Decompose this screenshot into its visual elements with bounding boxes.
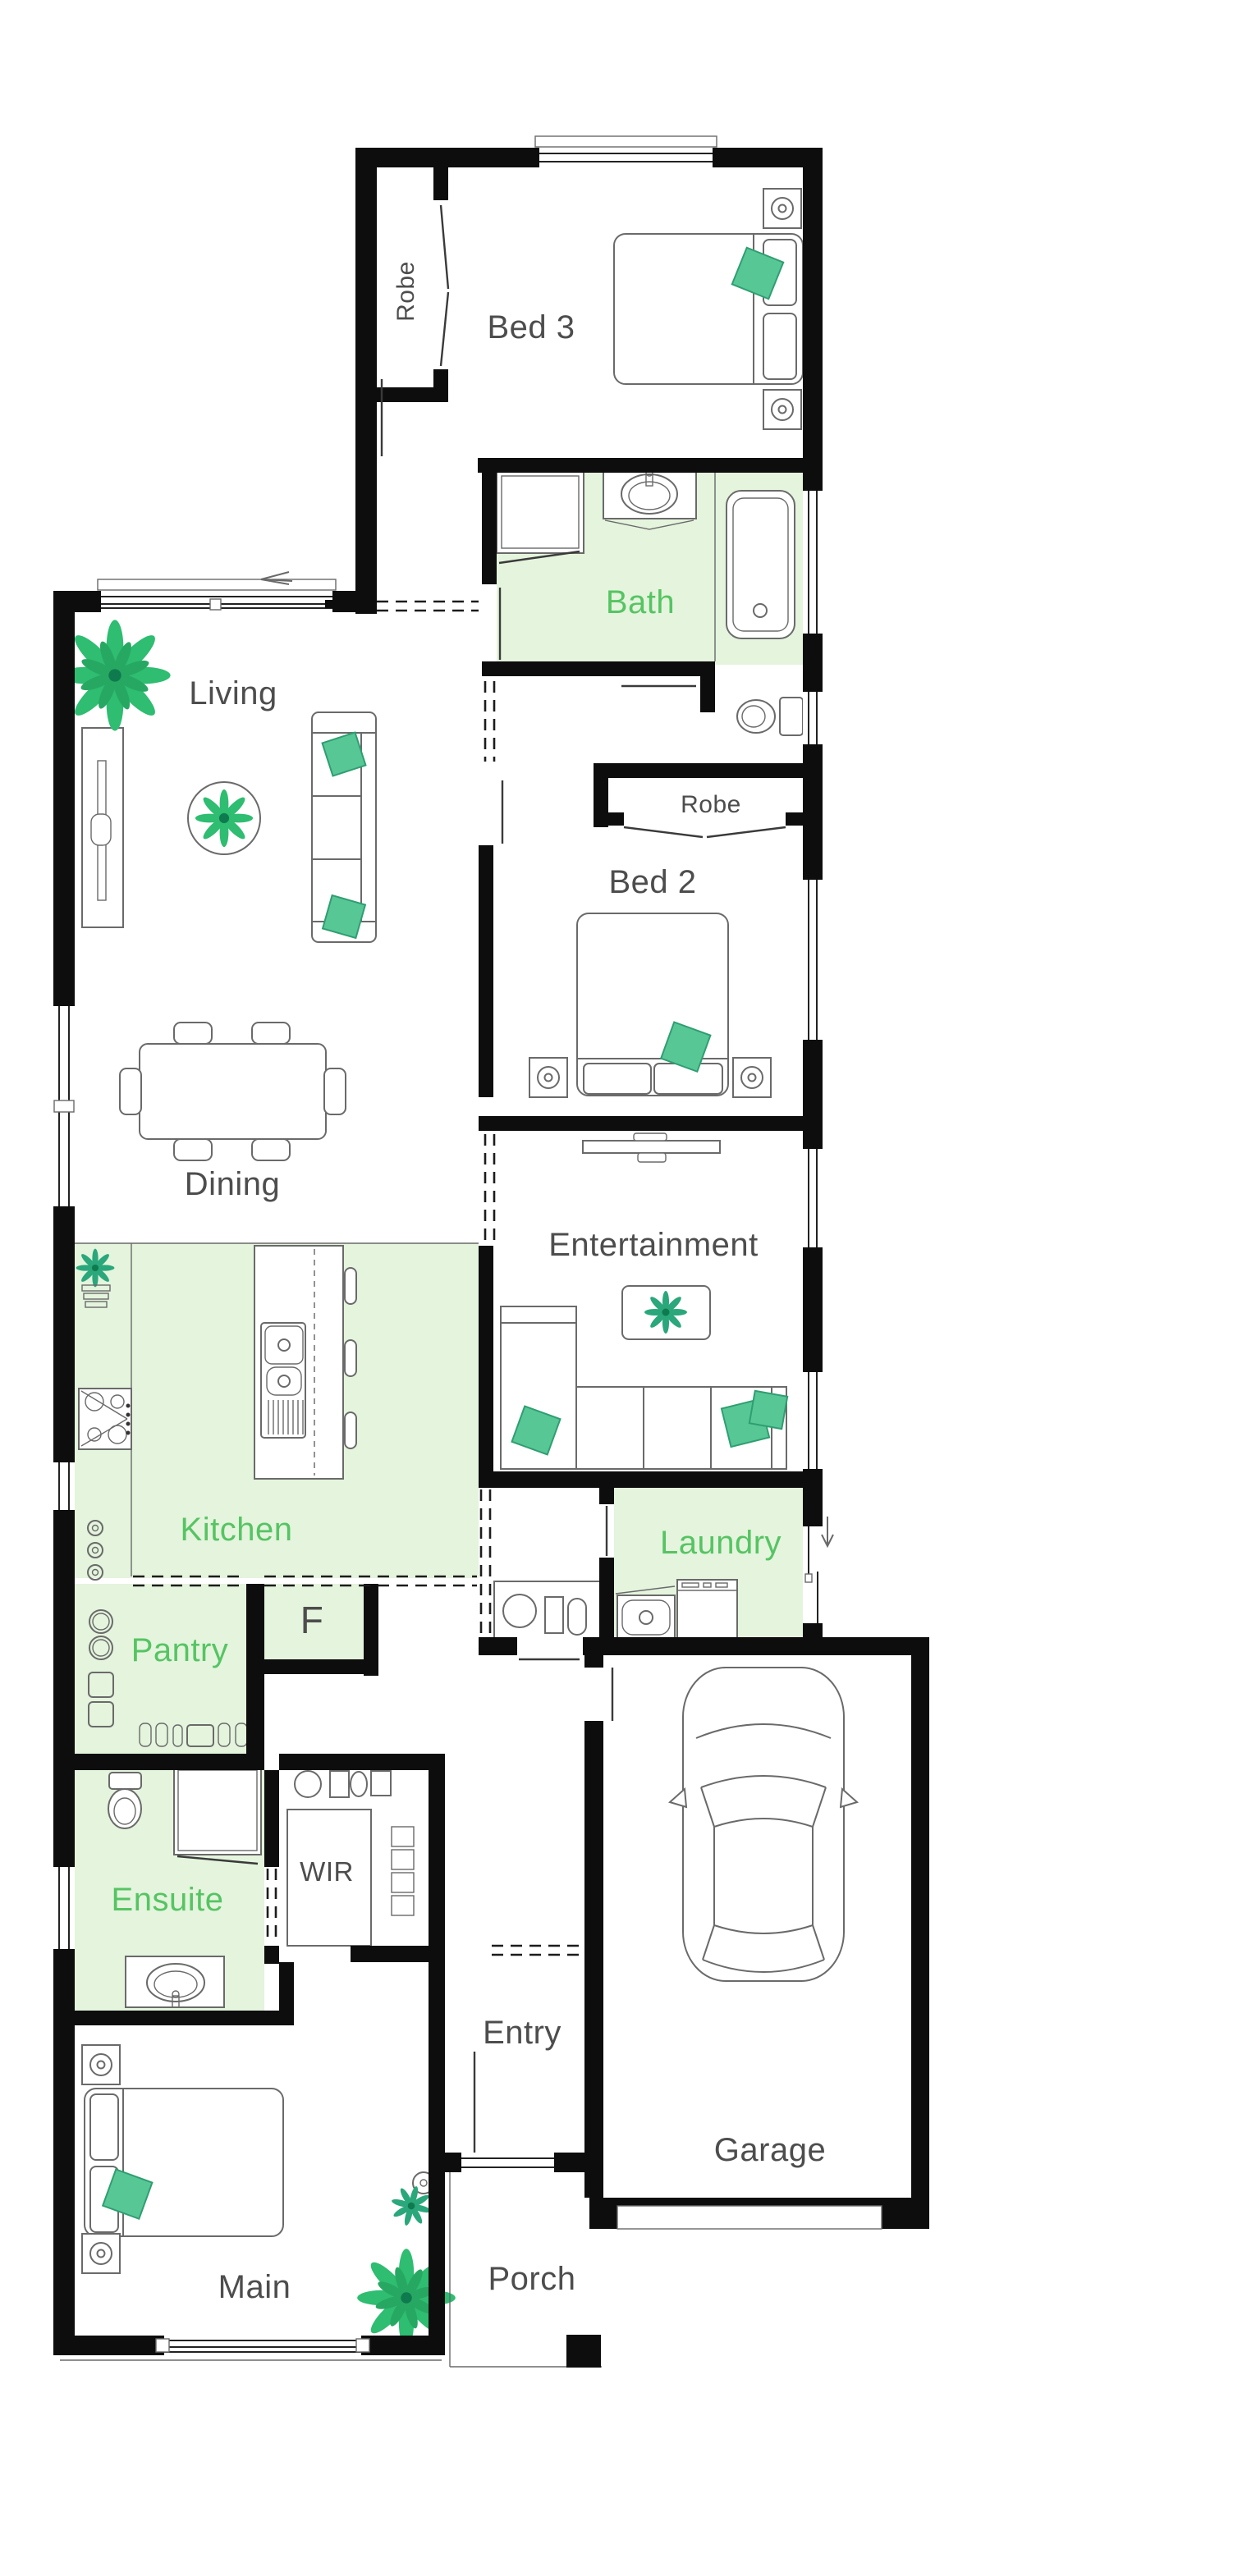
room-label-living: Living [189,675,277,711]
room-label-bath: Bath [606,584,675,620]
nightstand-lamp-icon [82,2234,120,2273]
room-label-kitchen: Kitchen [181,1512,293,1548]
hall-bench-icon [494,1581,605,1639]
room-label-entertainment: Entertainment [548,1227,759,1263]
dining-table-icon [140,1044,326,1139]
window-icon [803,1149,823,1247]
island-sink-icon [254,1246,343,1479]
dining-furniture [120,1023,346,1160]
cooktop-icon [79,1389,131,1449]
room-label-dining: Dining [185,1166,280,1202]
chair-icon [120,1068,141,1114]
tv-unit-icon [82,728,123,927]
window-icon [535,136,717,167]
room-label-laundry: Laundry [660,1525,782,1561]
bar-stool-icon [345,1340,356,1376]
bed-icon [614,234,803,384]
shower-icon [497,471,584,563]
window-icon [53,1462,75,1510]
bed-icon [577,913,728,1096]
window-icon [803,692,823,744]
room-label-main: Main [218,2269,291,2305]
round-table-icon [188,782,260,854]
room-label-bed3: Bed 3 [487,309,575,345]
room-label-robe-bed3: Robe [392,261,419,322]
bar-stool-icon [345,1268,356,1304]
nightstand-lamp-icon [529,1058,567,1097]
door-opening [584,1668,603,1721]
plant-icon [195,789,253,847]
chair-icon [174,1023,212,1044]
room-label-robe-bed2: Robe [681,791,741,818]
car-icon [670,1668,857,1981]
washing-machine-icon [677,1580,737,1640]
floor-plan-svg: Bed 3 Robe Bath Living Robe Bed 2 Dining… [0,0,1233,2576]
chair-icon [174,1139,212,1160]
nightstand-lamp-icon [733,1058,771,1097]
window-icon [803,1372,823,1469]
plant-icon [644,1291,687,1334]
pantry-floor [73,1584,246,1754]
toilet-icon [108,1773,141,1828]
sliding-door-icon [803,1526,823,1623]
window-icon [803,491,823,634]
room-label-ensuite: Ensuite [112,1882,224,1918]
room-label-bed2: Bed 2 [608,864,696,900]
room-label-porch: Porch [488,2261,576,2297]
plant-icon [59,620,170,730]
window-icon [803,880,823,1040]
window-icon [53,1006,75,1206]
bed-icon [85,2089,283,2236]
nightstand-lamp-icon [763,189,801,228]
window-icon [53,1867,75,1949]
room-label-entry: Entry [483,2015,561,2051]
shower-icon [174,1766,261,1864]
chair-icon [252,1139,290,1160]
chair-icon [324,1068,346,1114]
chair-icon [252,1023,290,1044]
room-label-fridge: F [300,1599,324,1641]
nightstand-lamp-icon [763,390,801,429]
vanity-sink-icon [126,1956,224,2007]
door-opening [517,1637,583,1655]
floor-plan: Bed 3 Robe Bath Living Robe Bed 2 Dining… [0,0,1233,2576]
room-label-pantry: Pantry [131,1632,229,1668]
bathtub-icon [727,491,795,638]
nightstand-lamp-icon [82,2045,120,2084]
room-label-garage: Garage [714,2132,826,2168]
bar-stool-icon [345,1412,356,1448]
garage-door-icon [617,2206,882,2229]
coffee-table-icon [622,1286,710,1339]
cushion-icon [749,1391,787,1429]
room-label-wir: WIR [300,1856,354,1887]
